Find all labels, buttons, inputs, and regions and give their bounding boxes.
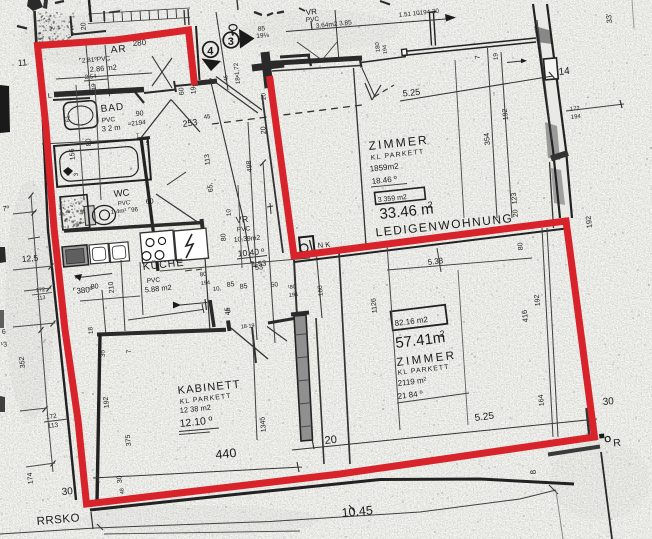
svg-text:PVC: PVC	[237, 225, 251, 233]
svg-text:45: 45	[223, 75, 230, 82]
svg-text:192: 192	[103, 396, 111, 408]
svg-text:WC: WC	[113, 187, 130, 200]
svg-text:11: 11	[17, 57, 27, 68]
svg-text:3: 3	[228, 36, 234, 48]
svg-text:4: 4	[207, 46, 214, 58]
svg-text:20: 20	[324, 434, 337, 447]
svg-text:164: 164	[538, 394, 546, 406]
svg-text:30: 30	[116, 475, 124, 484]
svg-text:AR: AR	[110, 44, 127, 56]
svg-text:80: 80	[200, 272, 208, 279]
svg-text:48: 48	[119, 488, 126, 495]
svg-text:R: R	[613, 437, 622, 450]
svg-text:10,: 10,	[213, 286, 222, 293]
svg-text:60: 60	[145, 198, 154, 206]
svg-text:80: 80	[220, 233, 228, 242]
svg-text:160: 160	[317, 285, 325, 297]
svg-text:7º: 7º	[3, 205, 10, 213]
svg-text:180: 180	[375, 41, 382, 52]
svg-text:2: 2	[427, 200, 433, 210]
svg-text:123: 123	[511, 192, 519, 204]
svg-text:10: 10	[225, 208, 233, 216]
svg-text:¹3: ¹3	[1, 341, 8, 349]
svg-text:375: 375	[125, 434, 133, 446]
svg-text:172: 172	[36, 287, 46, 294]
svg-text:7: 7	[136, 133, 140, 139]
svg-text:113: 113	[204, 154, 212, 166]
svg-text:85: 85	[226, 281, 235, 289]
svg-text:20: 20	[260, 126, 268, 135]
svg-text:498: 498	[246, 160, 254, 172]
svg-text:210: 210	[108, 281, 116, 293]
svg-text:194: 194	[201, 280, 211, 287]
svg-text:61: 61	[65, 114, 72, 122]
svg-text:352: 352	[19, 356, 27, 368]
svg-text:192: 192	[534, 294, 542, 306]
svg-text:19: 19	[492, 52, 500, 60]
svg-text:354: 354	[482, 132, 492, 145]
svg-text:1.53: 1.53	[251, 259, 266, 269]
svg-text:174: 174	[27, 472, 35, 484]
svg-text:30: 30	[61, 486, 73, 498]
svg-text:20: 20	[80, 22, 88, 31]
svg-text:6: 6	[2, 329, 7, 336]
svg-text:33ʹ: 33ʹ	[604, 13, 614, 24]
svg-text:18: 18	[87, 326, 95, 334]
svg-text:65,: 65,	[207, 182, 215, 192]
svg-text:50: 50	[270, 281, 278, 289]
svg-text:85: 85	[239, 283, 248, 291]
svg-text:O: O	[604, 434, 612, 445]
svg-text:192: 192	[584, 215, 594, 228]
svg-text:192: 192	[502, 108, 510, 120]
svg-text:30: 30	[602, 396, 614, 408]
svg-text:113: 113	[37, 295, 46, 302]
svg-text:14: 14	[558, 66, 571, 78]
svg-text:L: L	[48, 93, 53, 100]
svg-text:5.25: 5.25	[402, 87, 420, 99]
svg-text:194: 194	[382, 45, 389, 55]
svg-text:20: 20	[512, 209, 520, 218]
svg-text:156: 156	[69, 148, 77, 160]
svg-text:80: 80	[517, 242, 525, 251]
svg-text:194: 194	[571, 114, 582, 121]
svg-text:10.45: 10.45	[341, 503, 373, 520]
svg-text:60: 60	[178, 87, 186, 96]
svg-text:19⅛: 19⅛	[256, 32, 270, 40]
svg-text:90: 90	[135, 110, 144, 118]
svg-text:¹80: ¹80	[288, 284, 297, 291]
svg-text:440: 440	[215, 446, 237, 462]
svg-text:194: 194	[289, 292, 299, 299]
svg-text:416: 416	[520, 309, 530, 322]
